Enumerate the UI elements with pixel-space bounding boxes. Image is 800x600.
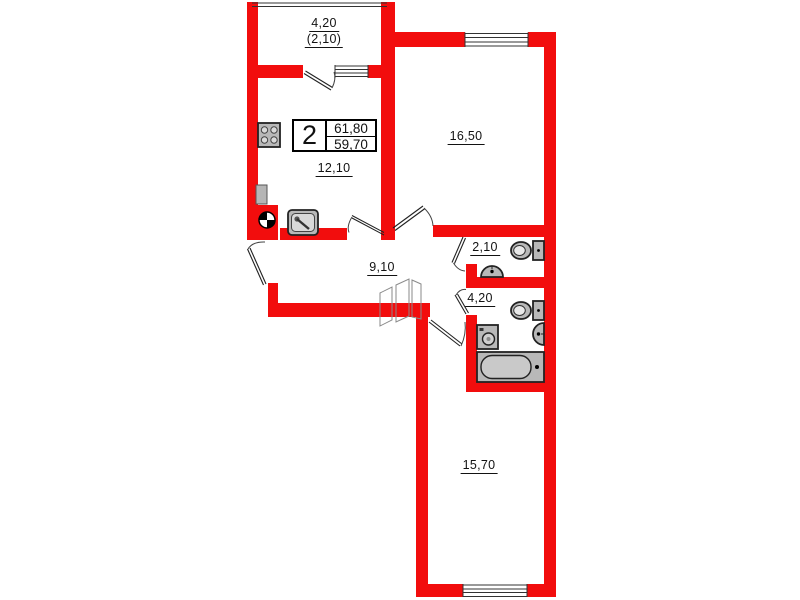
kitchen-area-label: 12,10	[316, 162, 353, 177]
wc-toilet-icon	[511, 241, 544, 260]
balcony-parapet-line	[252, 3, 387, 7]
room-count: 2	[294, 121, 325, 150]
wc-door-icon	[452, 237, 466, 271]
washing-machine-icon	[477, 325, 498, 349]
bathroom-toilet-icon	[511, 301, 544, 320]
total-area-value: 61,80	[327, 121, 375, 137]
livingroom-door-icon	[393, 206, 433, 231]
living-area-value: 59,70	[327, 137, 375, 152]
bedroom-area-label: 15,70	[461, 459, 498, 474]
entrance-door-icon	[248, 242, 267, 285]
wardrobe-icon	[380, 279, 421, 326]
livingroom-window-icon	[465, 33, 528, 48]
kitchen-door-icon	[348, 216, 384, 236]
kitchen-sink-icon	[288, 210, 318, 235]
apartment-stats-box: 2 61,80 59,70	[292, 119, 377, 152]
floor-plan: 4,20 (2,10) 2 61,80 59,70 12,10 16,50 2,…	[0, 0, 800, 600]
balcony-door-icon	[304, 71, 335, 90]
fridge-icon	[256, 185, 267, 204]
bathroom-washbasin-icon	[533, 323, 544, 345]
bathtub-icon	[477, 352, 544, 382]
hallway-area-label: 9,10	[367, 261, 397, 276]
livingroom-area-label: 16,50	[448, 130, 485, 145]
wc-area-label: 2,10	[470, 241, 500, 256]
bedroom-window-icon	[463, 584, 527, 597]
kitchen-window-icon	[335, 65, 368, 78]
stove-icon	[258, 123, 280, 147]
balcony-area-reduced-label: (2,10)	[305, 33, 343, 48]
vent-icon	[259, 212, 275, 228]
bathroom-area-label: 4,20	[465, 292, 495, 307]
balcony-area-label: 4,20	[309, 17, 339, 32]
wc-washbasin-icon	[481, 266, 503, 278]
plan-linework	[0, 0, 800, 600]
bedroom-door-icon	[429, 320, 465, 346]
